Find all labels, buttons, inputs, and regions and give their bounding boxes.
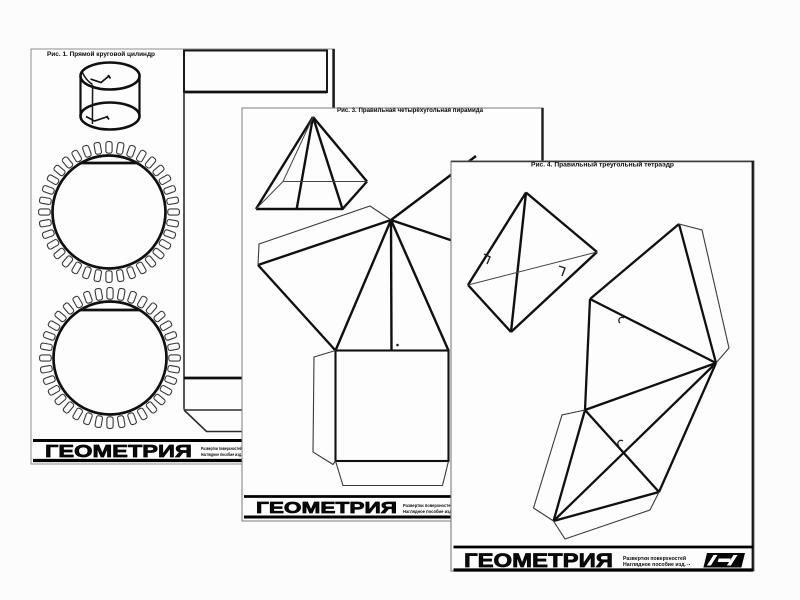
- svg-text:Наглядное пособие изд.: Наглядное пособие изд.: [403, 508, 453, 514]
- svg-text:Развертки поверхностей: Развертки поверхностей: [403, 502, 453, 508]
- svg-text:Рис. 3. Правильная четырёхугол: Рис. 3. Правильная четырёхугольная пирам…: [337, 107, 484, 114]
- svg-text:ГЕОМЕТРИЯ: ГЕОМЕТРИЯ: [464, 551, 613, 572]
- svg-text:ГЕОМЕТРИЯ: ГЕОМЕТРИЯ: [256, 500, 397, 517]
- svg-text:ГЕОМЕТРИЯ: ГЕОМЕТРИЯ: [45, 441, 192, 461]
- svg-text:Наглядное пособие изд.: Наглядное пособие изд.: [201, 451, 242, 457]
- svg-text:Рис. 1. Прямой круговой цилинд: Рис. 1. Прямой круговой цилиндр: [47, 51, 155, 58]
- svg-text:Развертки поверхностей: Развертки поверхностей: [623, 555, 686, 562]
- svg-text:..: ..: [687, 561, 691, 567]
- svg-text:Наглядное пособие изд.: Наглядное пособие изд.: [623, 561, 687, 568]
- svg-text:Рис. 4. Правильный треугольный: Рис. 4. Правильный треугольный тетраэдр: [531, 162, 674, 169]
- svg-text:Развертки поверхностей: Развертки поверхностей: [201, 445, 242, 451]
